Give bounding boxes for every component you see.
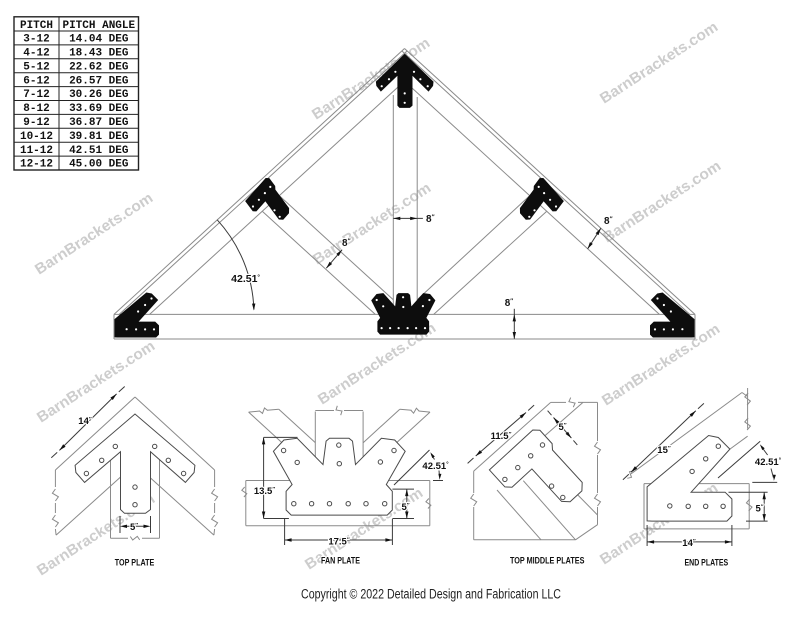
- svg-text:33.69 DEG: 33.69 DEG: [69, 103, 129, 115]
- svg-text:42.51 DEG: 42.51 DEG: [69, 145, 129, 157]
- svg-text:TOP MIDDLE PLATES: TOP MIDDLE PLATES: [510, 556, 584, 566]
- svg-text:8-12: 8-12: [23, 103, 49, 115]
- svg-text:9-12: 9-12: [23, 117, 49, 129]
- svg-text:17.5″: 17.5″: [328, 537, 350, 548]
- svg-text:FAN PLATE: FAN PLATE: [321, 556, 360, 566]
- svg-text:7-12: 7-12: [23, 89, 49, 101]
- svg-text:42.51°: 42.51°: [231, 273, 260, 285]
- svg-text:10-12: 10-12: [20, 131, 53, 143]
- svg-text:42.51°: 42.51°: [755, 457, 782, 468]
- svg-text:3-12: 3-12: [23, 34, 49, 46]
- svg-text:TOP PLATE: TOP PLATE: [115, 558, 155, 568]
- svg-text:6-12: 6-12: [23, 75, 49, 87]
- svg-text:30.26 DEG: 30.26 DEG: [69, 89, 129, 101]
- svg-text:PITCH ANGLE: PITCH ANGLE: [62, 20, 135, 32]
- svg-text:END PLATES: END PLATES: [685, 558, 729, 568]
- svg-text:45.00 DEG: 45.00 DEG: [69, 159, 129, 171]
- svg-text:18.43 DEG: 18.43 DEG: [69, 48, 129, 60]
- svg-text:12-12: 12-12: [20, 159, 53, 171]
- svg-text:5-12: 5-12: [23, 61, 49, 73]
- svg-text:Copyright © 2022 Detailed Desi: Copyright © 2022 Detailed Design and Fab…: [301, 587, 561, 602]
- svg-text:11.5″: 11.5″: [491, 431, 512, 442]
- svg-text:13.5″: 13.5″: [254, 486, 276, 497]
- svg-text:PITCH: PITCH: [20, 20, 53, 32]
- svg-text:39.81 DEG: 39.81 DEG: [69, 131, 129, 143]
- svg-text:22.62 DEG: 22.62 DEG: [69, 61, 129, 73]
- svg-text:36.87 DEG: 36.87 DEG: [69, 117, 129, 129]
- svg-text:11-12: 11-12: [20, 145, 53, 157]
- svg-text:4-12: 4-12: [23, 48, 49, 60]
- svg-text:14.04 DEG: 14.04 DEG: [69, 34, 129, 46]
- svg-text:26.57 DEG: 26.57 DEG: [69, 75, 129, 87]
- svg-text:42.51°: 42.51°: [422, 461, 449, 472]
